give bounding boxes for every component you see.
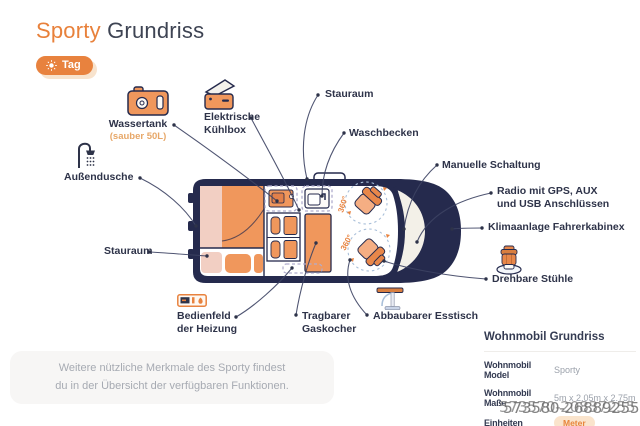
listing-id-watermark: 573570-20837255 573580-26889255 [499,398,639,420]
label-wassertank: Wassertank (sauber 50L) [99,118,177,142]
label-klimaanlage: Klimaanlage Fahrerkabinex [488,221,625,234]
kitchen-counter [265,186,297,211]
outdoor-shower-icon [74,142,98,170]
label-radio: Radio mit GPS, AUX und USB Anschlüssen [497,185,609,210]
sun-icon [46,60,57,71]
label-waschbecken: Waschbecken [349,127,419,140]
info-row-model-value: Sporty [554,365,580,375]
watermark-front: 573580-26889255 [503,399,639,417]
info-panel-title: Wohnmobil Grundriss [484,331,636,352]
label-stauraum-top: Stauraum [325,88,373,101]
label-wassertank-sub: (sauber 50L) [99,131,177,142]
label-gaskocher: Tragbarer Gaskocher [302,310,356,335]
water-tank-icon [126,85,170,117]
note-line-1: Weitere nützliche Merkmale des Sporty fi… [10,360,334,377]
cabinet-drawers [267,213,300,261]
info-row-model-label: Wohnmobil Model [484,360,554,380]
heater-control-icon [177,294,207,307]
page-title: Sporty Grundriss [36,18,204,44]
page-title-rest: Grundriss [101,18,204,43]
swivel-chair-icon [495,245,523,275]
note-card: Weitere nützliche Merkmale des Sporty fi… [10,351,334,404]
underbed-storage [201,252,222,273]
info-row-model: Wohnmobil Model Sporty [484,360,636,380]
day-mode-label: Tag [62,59,81,71]
sink-unit [302,186,332,211]
dining-table-icon [375,285,405,312]
note-line-2: du in der Übersicht der verfügbaren Funk… [10,378,334,395]
bed-area [200,186,264,276]
label-aussendusche: Außendusche [64,171,133,184]
label-bedienfeld: Bedienfeld der Heizung [177,310,237,335]
label-kuehlbox: Elektrische Kühlbox [204,111,260,136]
label-drehbare-stuehle: Drehbare Stühle [492,273,573,286]
label-esstisch: Abbaubarer Esstisch [373,310,478,323]
page-title-accent: Sporty [36,18,101,43]
label-manuelle-schaltung: Manuelle Schaltung [442,159,541,172]
label-stauraum-left: Stauraum [104,245,152,258]
day-mode-badge[interactable]: Tag [36,56,93,75]
cool-box-icon [201,78,237,112]
screenshot-root: 360° 360° [0,0,640,426]
